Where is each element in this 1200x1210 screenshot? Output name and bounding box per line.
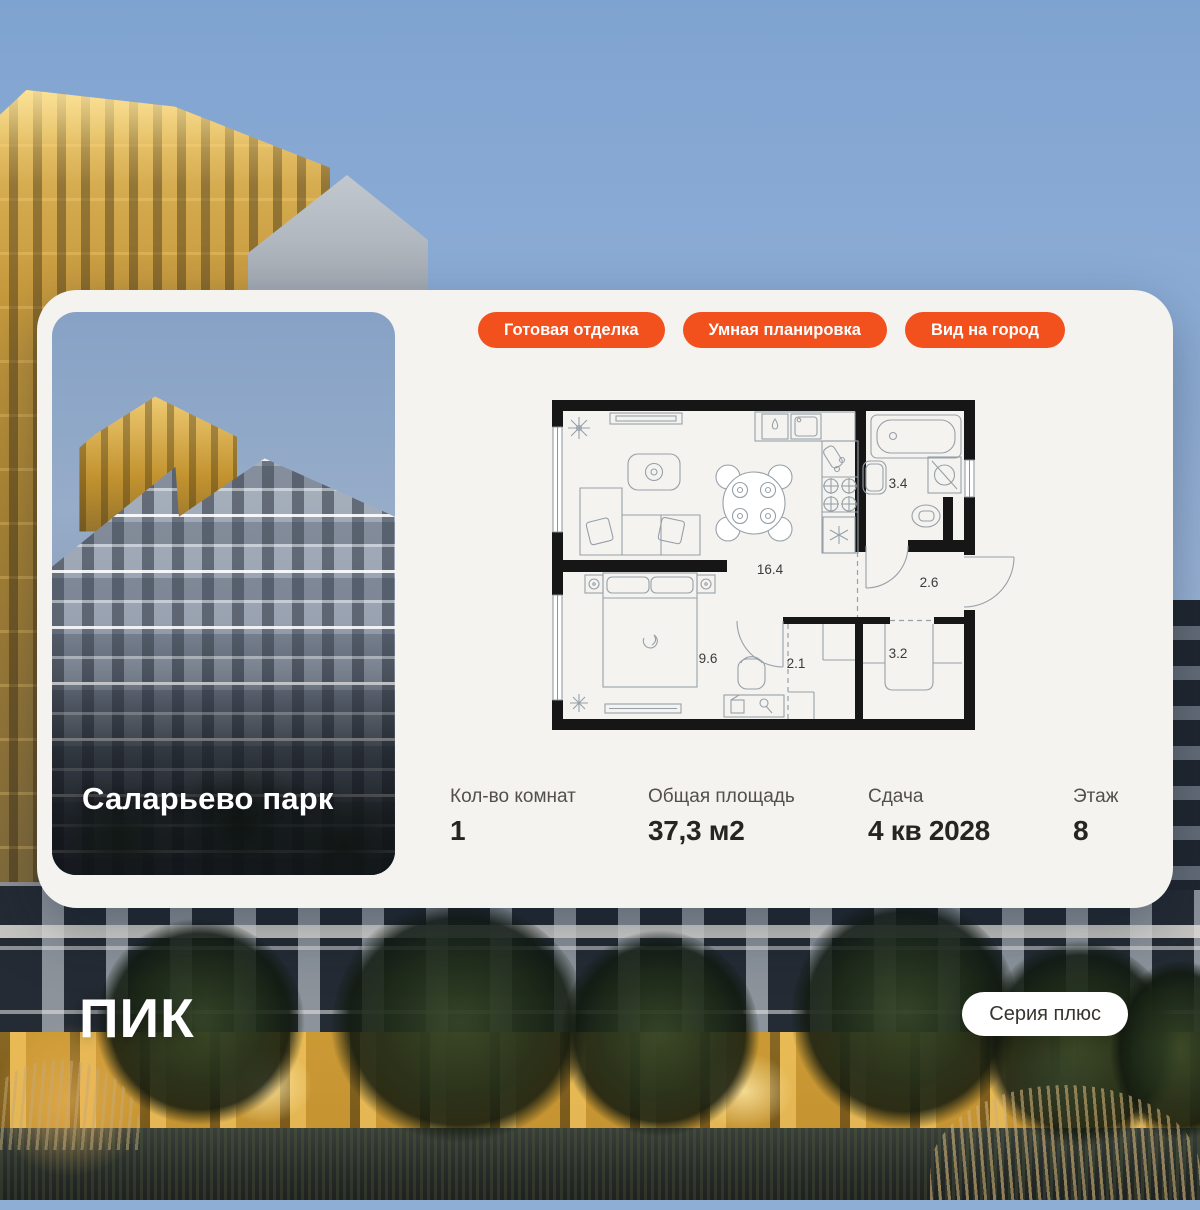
desk-chair-icon: [738, 657, 765, 689]
toilet-icon: [912, 505, 940, 527]
closet-32-icon: [863, 624, 962, 690]
stat-area-value: 37,3 м2: [648, 815, 795, 847]
stat-delivery: Сдача 4 кв 2028: [868, 786, 990, 847]
desk-icon: [724, 695, 784, 717]
tree: [560, 930, 760, 1160]
stat-area: Общая площадь 37,3 м2: [648, 786, 795, 847]
stat-rooms: Кол-во комнат 1: [450, 786, 576, 847]
dining-table-icon: [716, 465, 792, 541]
room-label-bedroom: 9.6: [699, 651, 718, 666]
sofa-icon: [580, 488, 700, 555]
tree: [330, 900, 590, 1170]
badge-smart-layout: Умная планировка: [683, 312, 887, 348]
plant-icon: [568, 417, 590, 439]
stat-delivery-value: 4 кв 2028: [868, 815, 990, 847]
pik-logo: ПИК: [79, 986, 195, 1050]
stat-delivery-label: Сдача: [868, 786, 990, 808]
room-label-closet: 3.2: [889, 646, 908, 661]
nightstand-icon: [585, 575, 715, 593]
stat-area-label: Общая площадь: [648, 786, 795, 808]
bed-icon: [603, 573, 697, 687]
stat-rooms-value: 1: [450, 815, 576, 847]
project-photo-card[interactable]: Саларьево парк: [52, 312, 395, 875]
stat-rooms-label: Кол-во комнат: [450, 786, 576, 808]
project-title: Саларьево парк: [82, 781, 334, 817]
windowsill-icon: [605, 704, 681, 713]
series-badge-label: Серия плюс: [989, 1003, 1101, 1026]
stat-floor-label: Этаж: [1073, 786, 1118, 808]
bath-sink-icon: [863, 461, 886, 494]
shelf-icon: [610, 413, 682, 424]
fridge-icon: [823, 517, 855, 553]
room-label-bathroom: 3.4: [889, 476, 908, 491]
floorplan: 16.4 3.4 2.6 9.6 2.1 3.2: [552, 400, 1022, 730]
bathtub-icon: [871, 415, 961, 458]
listing-card[interactable]: Саларьево парк Готовая отделка Умная пла…: [37, 290, 1173, 908]
series-badge: Серия плюс: [962, 992, 1128, 1036]
wardrobe-21-icon: [788, 624, 855, 719]
badge-finishing: Готовая отделка: [478, 312, 665, 348]
room-label-hallway: 2.6: [920, 575, 939, 590]
room-label-living: 16.4: [757, 562, 784, 577]
coffee-table-icon: [628, 454, 680, 490]
stove-icon: [823, 478, 857, 512]
feature-badges: Готовая отделка Умная планировка Вид на …: [478, 312, 1065, 348]
badge-city-view: Вид на город: [905, 312, 1065, 348]
floorplan-svg: 16.4 3.4 2.6 9.6 2.1 3.2: [552, 400, 1022, 730]
room-label-wardrobe: 2.1: [787, 656, 806, 671]
stat-floor-value: 8: [1073, 815, 1118, 847]
bedroom-plant-icon: [570, 694, 588, 712]
stat-floor: Этаж 8: [1073, 786, 1118, 847]
washing-machine-icon: [928, 457, 961, 493]
